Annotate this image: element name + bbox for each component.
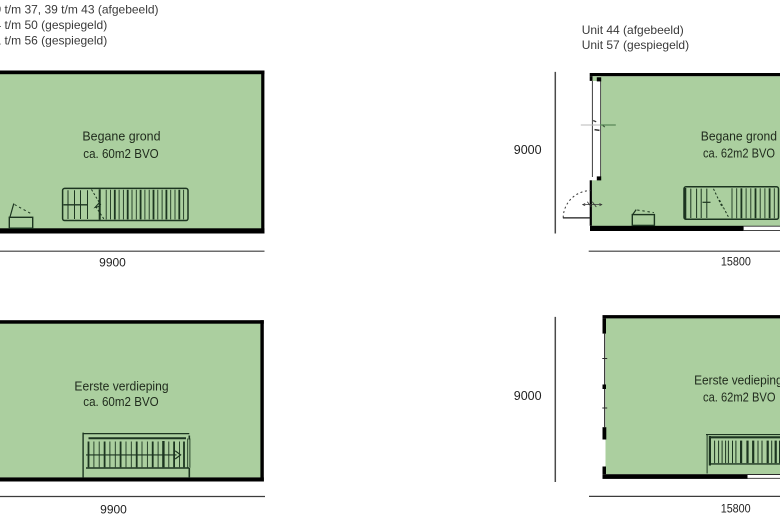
svg-text:Unit 44 (afgebeeld): Unit 44 (afgebeeld) (582, 23, 684, 37)
svg-text:Eerste verdieping: Eerste verdieping (74, 379, 168, 394)
svg-text:15800: 15800 (721, 254, 751, 268)
svg-text:Unit 57 (gespiegeld): Unit 57 (gespiegeld) (582, 38, 689, 52)
svg-text:9900: 9900 (99, 255, 126, 269)
svg-text:Eerste vedieping: Eerste vedieping (694, 373, 780, 388)
svg-text:ca. 62m2 BVO: ca. 62m2 BVO (703, 389, 776, 404)
svg-text:9900: 9900 (100, 503, 127, 517)
svg-text:Begane grond: Begane grond (701, 128, 777, 143)
svg-text:ca. 62m2 BVO: ca. 62m2 BVO (703, 146, 775, 161)
svg-text:9000: 9000 (514, 389, 542, 403)
svg-text:Unit 51 t/m 56 (gespiegeld): Unit 51 t/m 56 (gespiegeld) (0, 34, 107, 48)
svg-text:15800: 15800 (721, 501, 751, 515)
svg-text:ca. 60m2 BVO: ca. 60m2 BVO (83, 394, 158, 409)
svg-text:Unit 29 t/m 37, 39 t/m 43 (afg: Unit 29 t/m 37, 39 t/m 43 (afgebeeld) (0, 2, 159, 16)
svg-text:Unit 44 t/m 50 (gespiegeld): Unit 44 t/m 50 (gespiegeld) (0, 18, 107, 32)
svg-text:Begane grond: Begane grond (82, 129, 160, 144)
svg-text:ca. 60m2 BVO: ca. 60m2 BVO (83, 146, 158, 161)
svg-text:9000: 9000 (514, 143, 542, 157)
